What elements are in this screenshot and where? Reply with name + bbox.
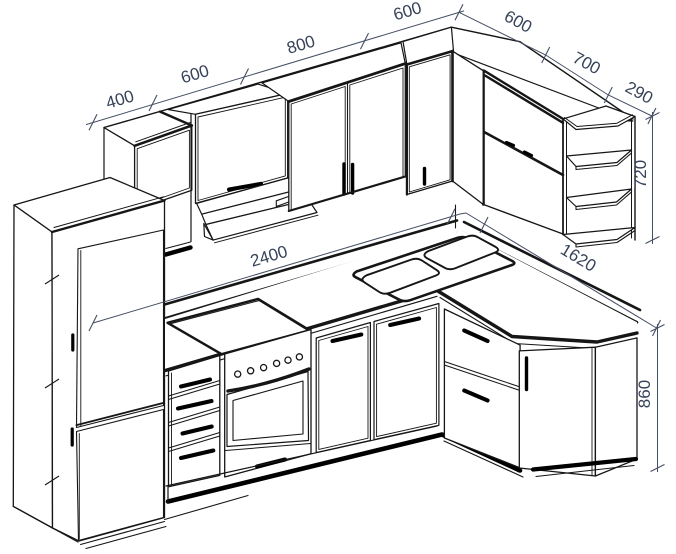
svg-text:860: 860 xyxy=(635,380,654,408)
svg-text:720: 720 xyxy=(631,160,650,188)
